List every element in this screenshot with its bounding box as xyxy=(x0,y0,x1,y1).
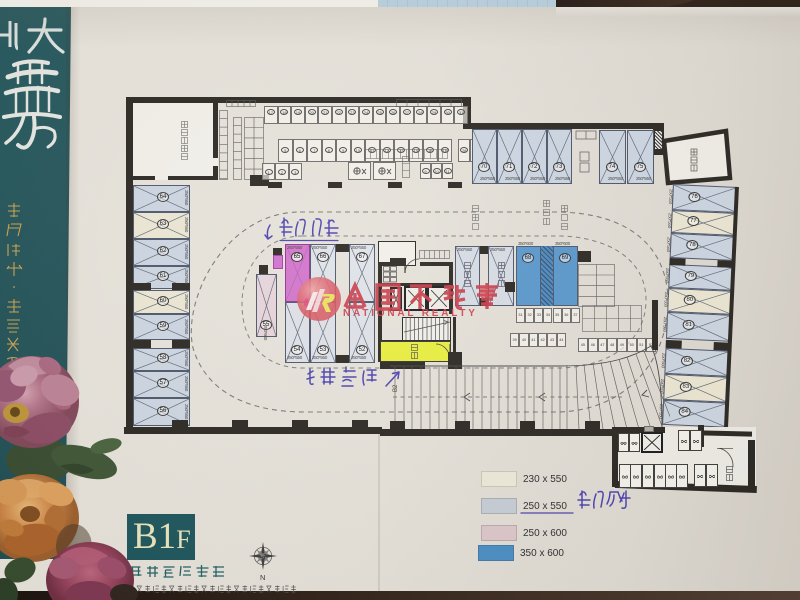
svg-text:N: N xyxy=(260,573,265,582)
